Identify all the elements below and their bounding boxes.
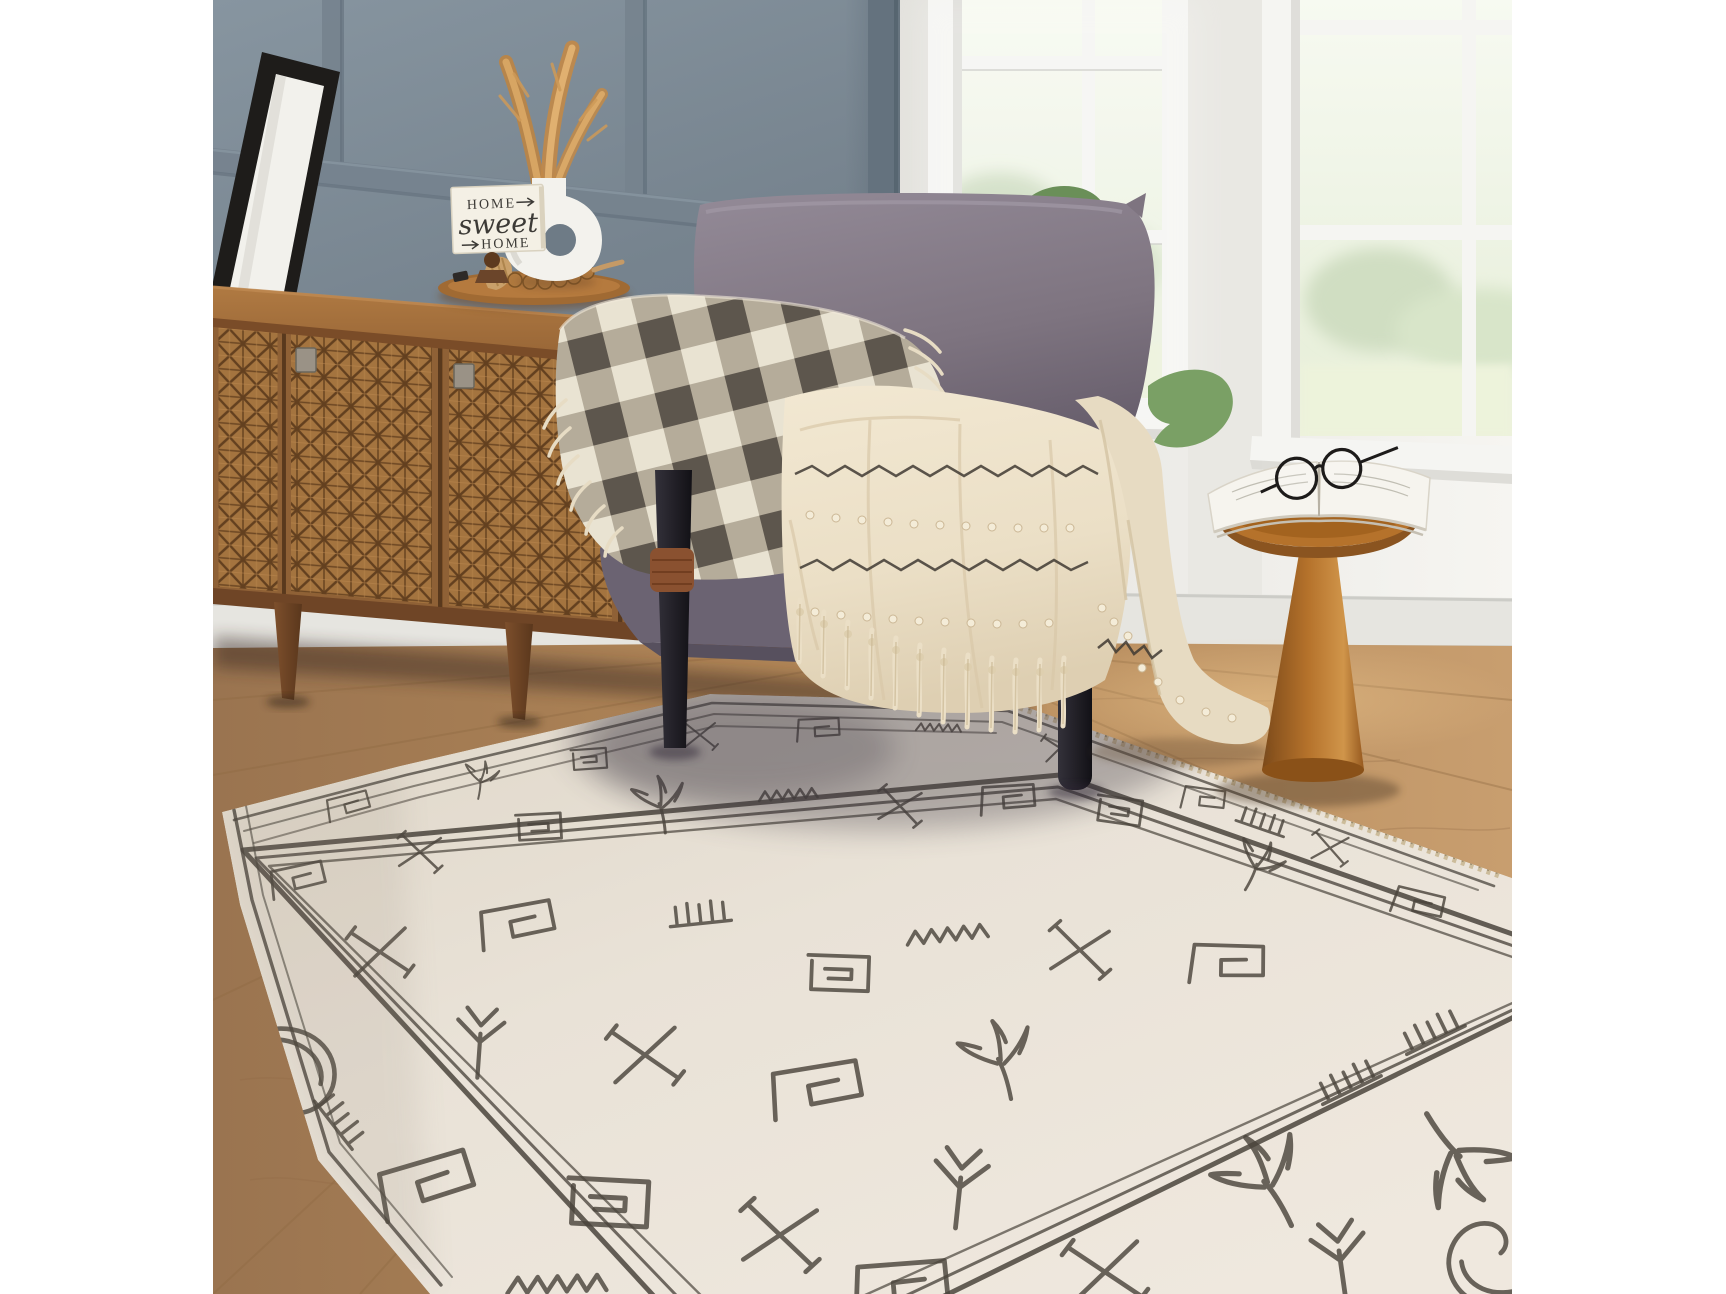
vase-hole xyxy=(544,224,576,256)
door-handle xyxy=(454,364,474,388)
letterbox-left xyxy=(0,0,213,1294)
home-sweet-home-sign: HOME sweet HOME xyxy=(451,184,546,253)
photo-stage: HOME sweet HOME xyxy=(0,0,1726,1294)
leather-wrap xyxy=(650,548,694,592)
door-handle xyxy=(296,348,316,372)
sign-text-bottom: HOME xyxy=(481,236,531,253)
sideboard-door xyxy=(216,321,280,594)
window-muntin xyxy=(1300,225,1512,240)
letterbox-right xyxy=(1512,0,1726,1294)
window-muntin xyxy=(1300,20,1512,35)
window-muntin xyxy=(1462,0,1476,436)
photo: HOME sweet HOME xyxy=(213,0,1612,1294)
